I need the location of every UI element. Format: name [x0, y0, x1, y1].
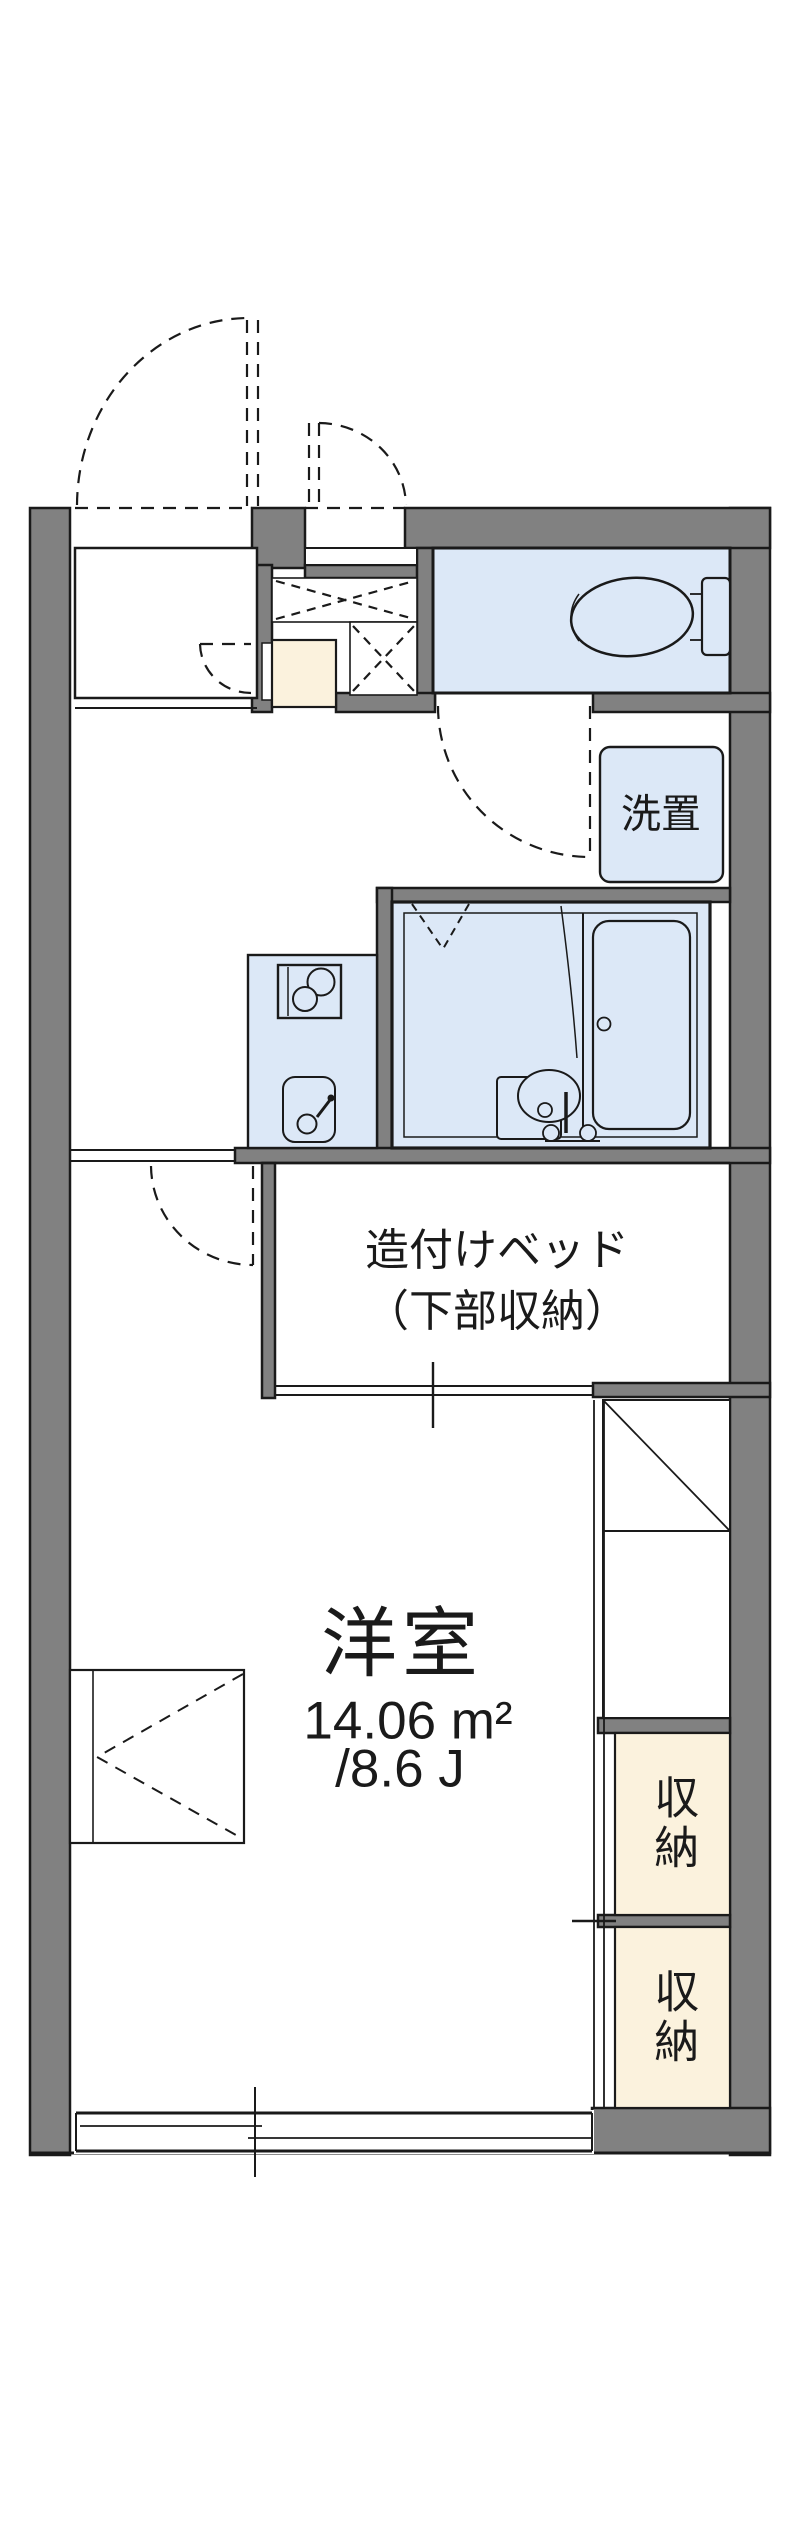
- genkan-frame-slot: [262, 643, 272, 700]
- wall-bed-left: [262, 1163, 275, 1398]
- wall-bed-bottom-right: [593, 1383, 770, 1397]
- wall-bath-top: [377, 888, 730, 902]
- storage-upper-label: 収納: [648, 1774, 697, 1874]
- storage-lower-label: 収納: [648, 1968, 697, 2068]
- entrance-hall-room: [75, 548, 257, 698]
- wall-bottom-right: [592, 2108, 770, 2153]
- wall-toilet-bottom: [593, 693, 770, 712]
- bed-sliding-front: [275, 1362, 593, 1428]
- shelf-space: [603, 1531, 730, 1718]
- corridor-opening: [70, 1150, 235, 1161]
- genkan-step: [272, 640, 336, 707]
- wall-nook-top: [305, 565, 432, 578]
- wall-entrance-bottom: [336, 693, 435, 712]
- bathtub-icon: [593, 921, 690, 1129]
- built-in-bed-label: 造付けベッド: [365, 1227, 629, 1275]
- floorplan-canvas: 洗置 造付けベッド （下部収納） 洋室 14.06 m² /8.6 J 収納 収…: [0, 0, 800, 2541]
- wall-shelf-storage: [598, 1718, 730, 1733]
- bed-storage-note-label: （下部収納）: [365, 1288, 629, 1336]
- second-door-swing: [309, 423, 406, 506]
- shoe-nook-lower: [350, 622, 417, 695]
- toilet-door-swing: [438, 706, 590, 857]
- door-recess-slot: [305, 548, 417, 565]
- sliding-window: [74, 2087, 594, 2177]
- wall-entrance-post-upper: [252, 508, 305, 568]
- wall-right: [730, 508, 770, 2155]
- room-area-jo-label: /8.6 J: [335, 1740, 465, 1797]
- wall-bath-left: [377, 888, 392, 1150]
- wall-mid: [235, 1148, 770, 1163]
- casement-window: [70, 1670, 244, 1843]
- wall-left: [30, 508, 70, 2155]
- main-room-door-swing: [151, 1166, 253, 1265]
- laundry-label: 洗置: [621, 793, 701, 836]
- wall-top: [405, 508, 770, 548]
- kitchen-sink-icon: [283, 1077, 335, 1142]
- entrance-door-swing: [77, 318, 258, 506]
- room-name-label: 洋室: [321, 1604, 483, 1686]
- wall-storage-divider: [598, 1915, 730, 1927]
- stove-icon: [278, 965, 341, 1018]
